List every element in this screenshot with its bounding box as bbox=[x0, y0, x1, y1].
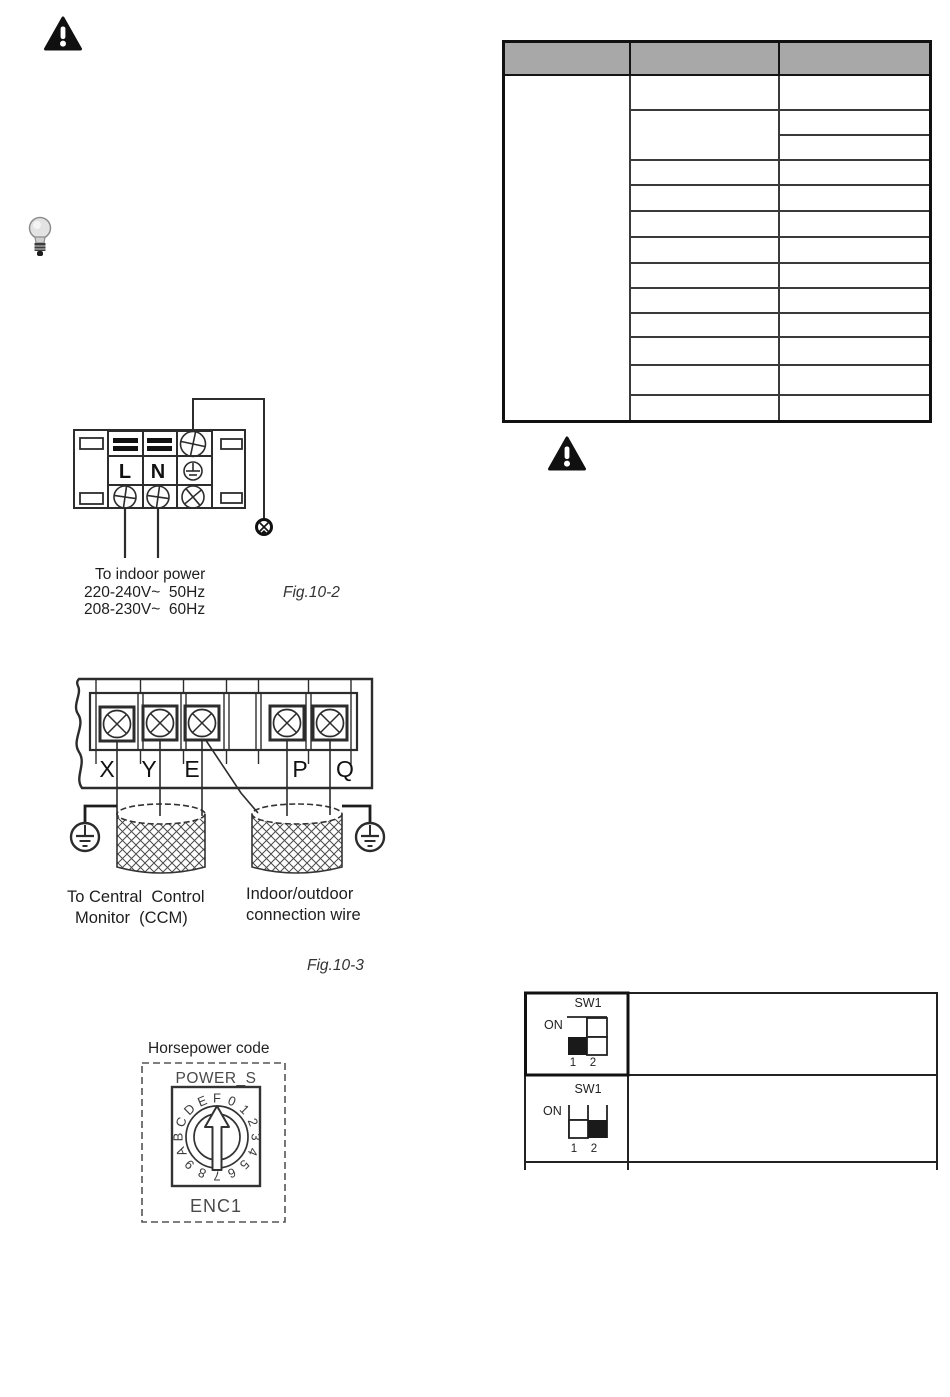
enc1-label: ENC1 bbox=[190, 1196, 242, 1216]
ccm-label-line1: To Central Control bbox=[67, 888, 205, 906]
pin1-label: 1 bbox=[570, 1057, 576, 1069]
spec-cell bbox=[779, 313, 931, 337]
terminal-label-E: E bbox=[184, 756, 199, 782]
spec-cell bbox=[504, 75, 630, 422]
dial-char: 3 bbox=[249, 1133, 264, 1140]
spec-cell bbox=[630, 313, 779, 337]
right-earth-connection bbox=[342, 806, 384, 851]
ccm-label-line2: Monitor (CCM) bbox=[75, 909, 188, 927]
chassis-earth-screw-icon bbox=[257, 520, 272, 535]
spec-cell bbox=[779, 263, 931, 288]
pin2-label: 2 bbox=[590, 1057, 596, 1069]
spec-cell bbox=[779, 135, 931, 160]
spec-cell bbox=[779, 288, 931, 313]
connection-wire-label-line2: connection wire bbox=[246, 906, 361, 924]
spec-cell bbox=[630, 395, 779, 422]
fig-10-2-power-terminal-diagram: L N To indoor power 220-240V~ 50Hz 208-2… bbox=[60, 390, 350, 630]
dip-switch-row2[interactable]: SW1 ON 1 2 bbox=[543, 1082, 607, 1155]
switch1-handle[interactable] bbox=[568, 1037, 587, 1055]
spec-row bbox=[504, 75, 931, 110]
spec-header-cell bbox=[630, 42, 779, 75]
spec-cell bbox=[779, 75, 931, 110]
fig3-label: Fig.10-3 bbox=[307, 957, 364, 974]
horsepower-title: Horsepower code bbox=[148, 1040, 269, 1057]
power-wires bbox=[125, 508, 158, 558]
spec-cell bbox=[630, 263, 779, 288]
on-label: ON bbox=[544, 1018, 563, 1032]
dial-char: B bbox=[171, 1133, 186, 1142]
terminal-label-N: N bbox=[151, 461, 165, 483]
terminal-label-Y: Y bbox=[141, 756, 156, 782]
spec-cell bbox=[630, 288, 779, 313]
spec-cell bbox=[630, 185, 779, 211]
spec-cell bbox=[779, 110, 931, 135]
dip-switch-table: SW1 ON 1 2 SW1 ON 1 2 bbox=[524, 991, 939, 1171]
ccm-cable bbox=[117, 804, 205, 873]
warning-triangle-icon bbox=[547, 435, 587, 473]
power-s-label: POWER_S bbox=[175, 1070, 256, 1087]
ground-symbol-icon bbox=[184, 462, 202, 480]
switch2-handle[interactable] bbox=[588, 1120, 607, 1138]
tip-lightbulb-icon bbox=[27, 213, 53, 261]
spec-cell bbox=[779, 160, 931, 185]
on-label: ON bbox=[543, 1104, 562, 1118]
spec-cell bbox=[630, 211, 779, 237]
sw1-label: SW1 bbox=[574, 996, 601, 1010]
spec-cell bbox=[779, 395, 931, 422]
spec-header-cell bbox=[779, 42, 931, 75]
dial-char: 7 bbox=[213, 1169, 220, 1184]
fig2-caption-line1: To indoor power bbox=[95, 566, 205, 583]
spec-table bbox=[502, 40, 932, 423]
spec-cell bbox=[779, 337, 931, 365]
spec-header-cell bbox=[504, 42, 630, 75]
spec-header-row bbox=[504, 42, 931, 75]
terminal-label-L: L bbox=[119, 461, 131, 483]
screw-terminal bbox=[179, 430, 207, 458]
fig2-caption-line2: 220-240V~ 50Hz bbox=[84, 584, 205, 601]
dial-char: F bbox=[213, 1091, 221, 1106]
warning-triangle-icon bbox=[43, 15, 83, 53]
spec-cell bbox=[630, 365, 779, 395]
terminal-label-P: P bbox=[292, 756, 307, 782]
spec-cell bbox=[779, 185, 931, 211]
pin1-label: 1 bbox=[571, 1143, 577, 1155]
screw-terminals-bottom bbox=[113, 482, 209, 513]
indoor-outdoor-cable bbox=[252, 804, 342, 873]
spec-cell bbox=[630, 160, 779, 185]
spec-cell bbox=[779, 237, 931, 263]
fig2-label: Fig.10-2 bbox=[283, 584, 340, 601]
sw1-label: SW1 bbox=[574, 1082, 601, 1096]
spec-cell bbox=[779, 365, 931, 395]
dip-switch-row1[interactable]: SW1 ON 1 2 bbox=[544, 996, 607, 1069]
spec-cell bbox=[779, 211, 931, 237]
spec-cell bbox=[630, 337, 779, 365]
terminal-label-Q: Q bbox=[336, 756, 354, 782]
horsepower-code-diagram: Horsepower code POWER_S F 0 1 2 3 4 5 6 … bbox=[140, 1035, 295, 1230]
spec-cell bbox=[630, 110, 779, 160]
terminal-label-X: X bbox=[99, 756, 114, 782]
fig2-caption-line3: 208-230V~ 60Hz bbox=[84, 601, 205, 618]
connection-wire-label-line1: Indoor/outdoor bbox=[246, 885, 354, 903]
left-earth-connection bbox=[71, 806, 117, 851]
manual-page: L N To indoor power 220-240V~ 50Hz 208-2… bbox=[0, 0, 950, 1397]
fig-10-3-comm-terminal-diagram: X Y E P Q To Central Control Monitor (CC… bbox=[55, 665, 400, 980]
spec-cell bbox=[630, 75, 779, 110]
pin2-label: 2 bbox=[591, 1143, 597, 1155]
spec-cell bbox=[630, 237, 779, 263]
